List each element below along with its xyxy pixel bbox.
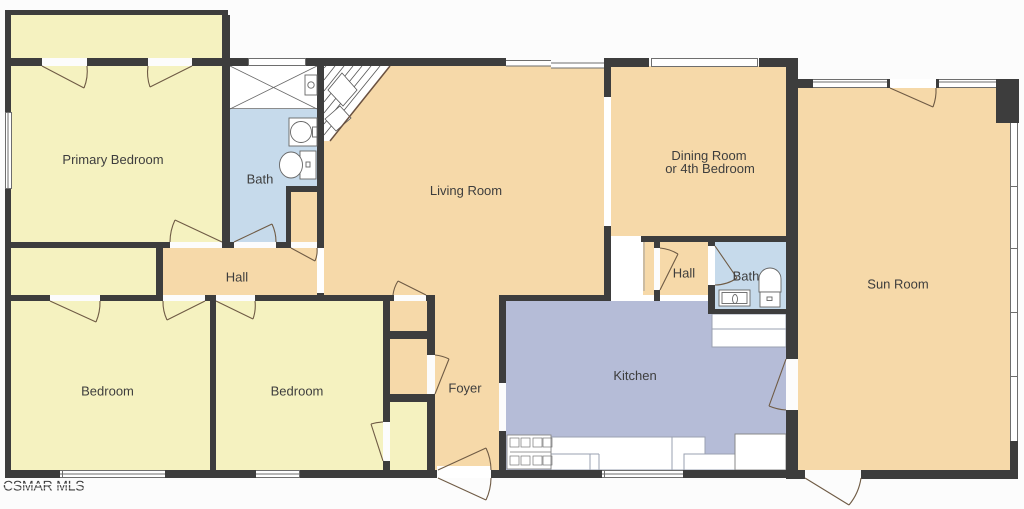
svg-text:Foyer: Foyer [448,381,482,396]
svg-text:Bedroom: Bedroom [271,384,324,399]
svg-text:CSMAR MLS: CSMAR MLS [3,478,84,494]
svg-text:Bedroom: Bedroom [81,384,134,399]
svg-text:Kitchen: Kitchen [613,368,656,383]
svg-text:or 4th Bedroom: or 4th Bedroom [665,161,755,176]
svg-text:Primary Bedroom: Primary Bedroom [62,152,163,167]
svg-text:Hall: Hall [226,270,249,285]
svg-text:Bath: Bath [247,172,274,187]
svg-text:Living Room: Living Room [430,183,502,198]
svg-text:Hall: Hall [673,266,696,281]
svg-text:Sun Room: Sun Room [867,277,928,292]
svg-text:Bath: Bath [733,269,760,284]
